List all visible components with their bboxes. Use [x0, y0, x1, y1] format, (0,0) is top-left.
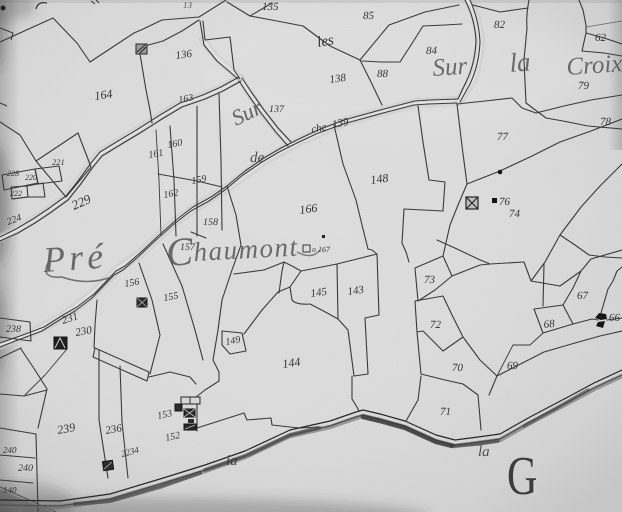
- svg-text:les: les: [316, 32, 335, 51]
- svg-text:haumont: haumont: [193, 232, 299, 267]
- svg-text:G: G: [507, 445, 537, 507]
- svg-text:la: la: [508, 47, 531, 78]
- svg-text:220: 220: [25, 173, 37, 182]
- svg-text:158: 158: [203, 217, 218, 228]
- svg-text:n 167: n 167: [312, 245, 331, 254]
- svg-text:13: 13: [183, 0, 193, 10]
- svg-text:88: 88: [377, 68, 389, 80]
- svg-text:Pré: Pré: [41, 236, 109, 280]
- svg-text:69: 69: [507, 360, 519, 372]
- svg-text:135: 135: [262, 1, 279, 13]
- svg-text:74: 74: [509, 208, 521, 220]
- svg-text:240: 240: [3, 445, 17, 455]
- svg-text:ia: ia: [226, 453, 238, 469]
- svg-text:72: 72: [430, 319, 442, 331]
- svg-text:79: 79: [578, 80, 590, 92]
- svg-text:85: 85: [363, 10, 375, 22]
- svg-text:137: 137: [269, 104, 285, 115]
- svg-text:221: 221: [52, 157, 65, 167]
- svg-text:68: 68: [543, 318, 556, 331]
- svg-text:de: de: [250, 150, 265, 166]
- svg-text:166: 166: [298, 201, 318, 217]
- svg-text:140: 140: [3, 485, 17, 495]
- svg-text:Croix: Croix: [566, 50, 622, 81]
- svg-text:62: 62: [595, 32, 607, 44]
- svg-text:70: 70: [452, 362, 464, 374]
- svg-text:77: 77: [497, 131, 509, 143]
- svg-text:238: 238: [6, 324, 21, 335]
- svg-text:Sur: Sur: [432, 53, 469, 82]
- svg-text:73: 73: [424, 274, 436, 286]
- svg-text:145: 145: [310, 286, 329, 300]
- svg-text:138: 138: [329, 72, 348, 86]
- svg-text:76: 76: [499, 196, 511, 208]
- svg-text:C: C: [164, 228, 195, 275]
- svg-text:164: 164: [93, 87, 113, 103]
- svg-text:148: 148: [369, 171, 389, 187]
- svg-text:67: 67: [577, 290, 589, 302]
- svg-text:228: 228: [7, 169, 19, 178]
- svg-text:143: 143: [347, 284, 366, 298]
- svg-text:240: 240: [18, 463, 33, 474]
- svg-text:78: 78: [600, 116, 612, 128]
- svg-text:222: 222: [10, 189, 22, 198]
- svg-text:71: 71: [440, 406, 451, 418]
- svg-text:la: la: [478, 444, 490, 460]
- svg-text:82: 82: [494, 19, 506, 31]
- svg-text:144: 144: [281, 355, 301, 371]
- svg-text:136: 136: [175, 48, 194, 62]
- svg-text:66: 66: [609, 312, 621, 324]
